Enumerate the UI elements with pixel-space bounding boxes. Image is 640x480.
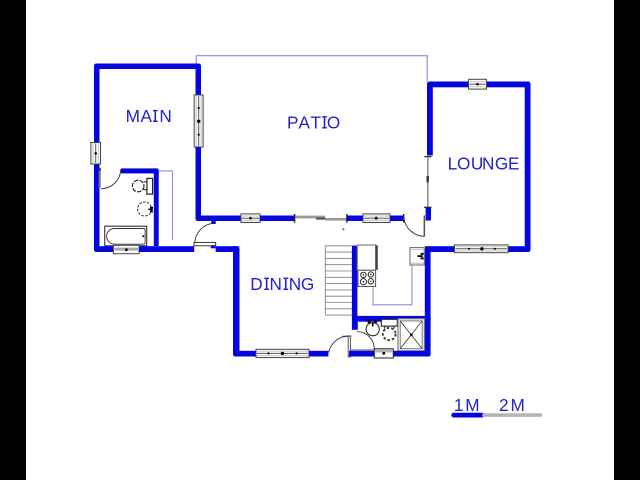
svg-text:LOUNGE: LOUNGE (448, 154, 520, 174)
svg-text:1M: 1M (454, 395, 480, 415)
svg-text:PATIO: PATIO (287, 113, 340, 133)
svg-text:2M: 2M (499, 395, 525, 415)
svg-text:MAIN: MAIN (126, 106, 172, 126)
